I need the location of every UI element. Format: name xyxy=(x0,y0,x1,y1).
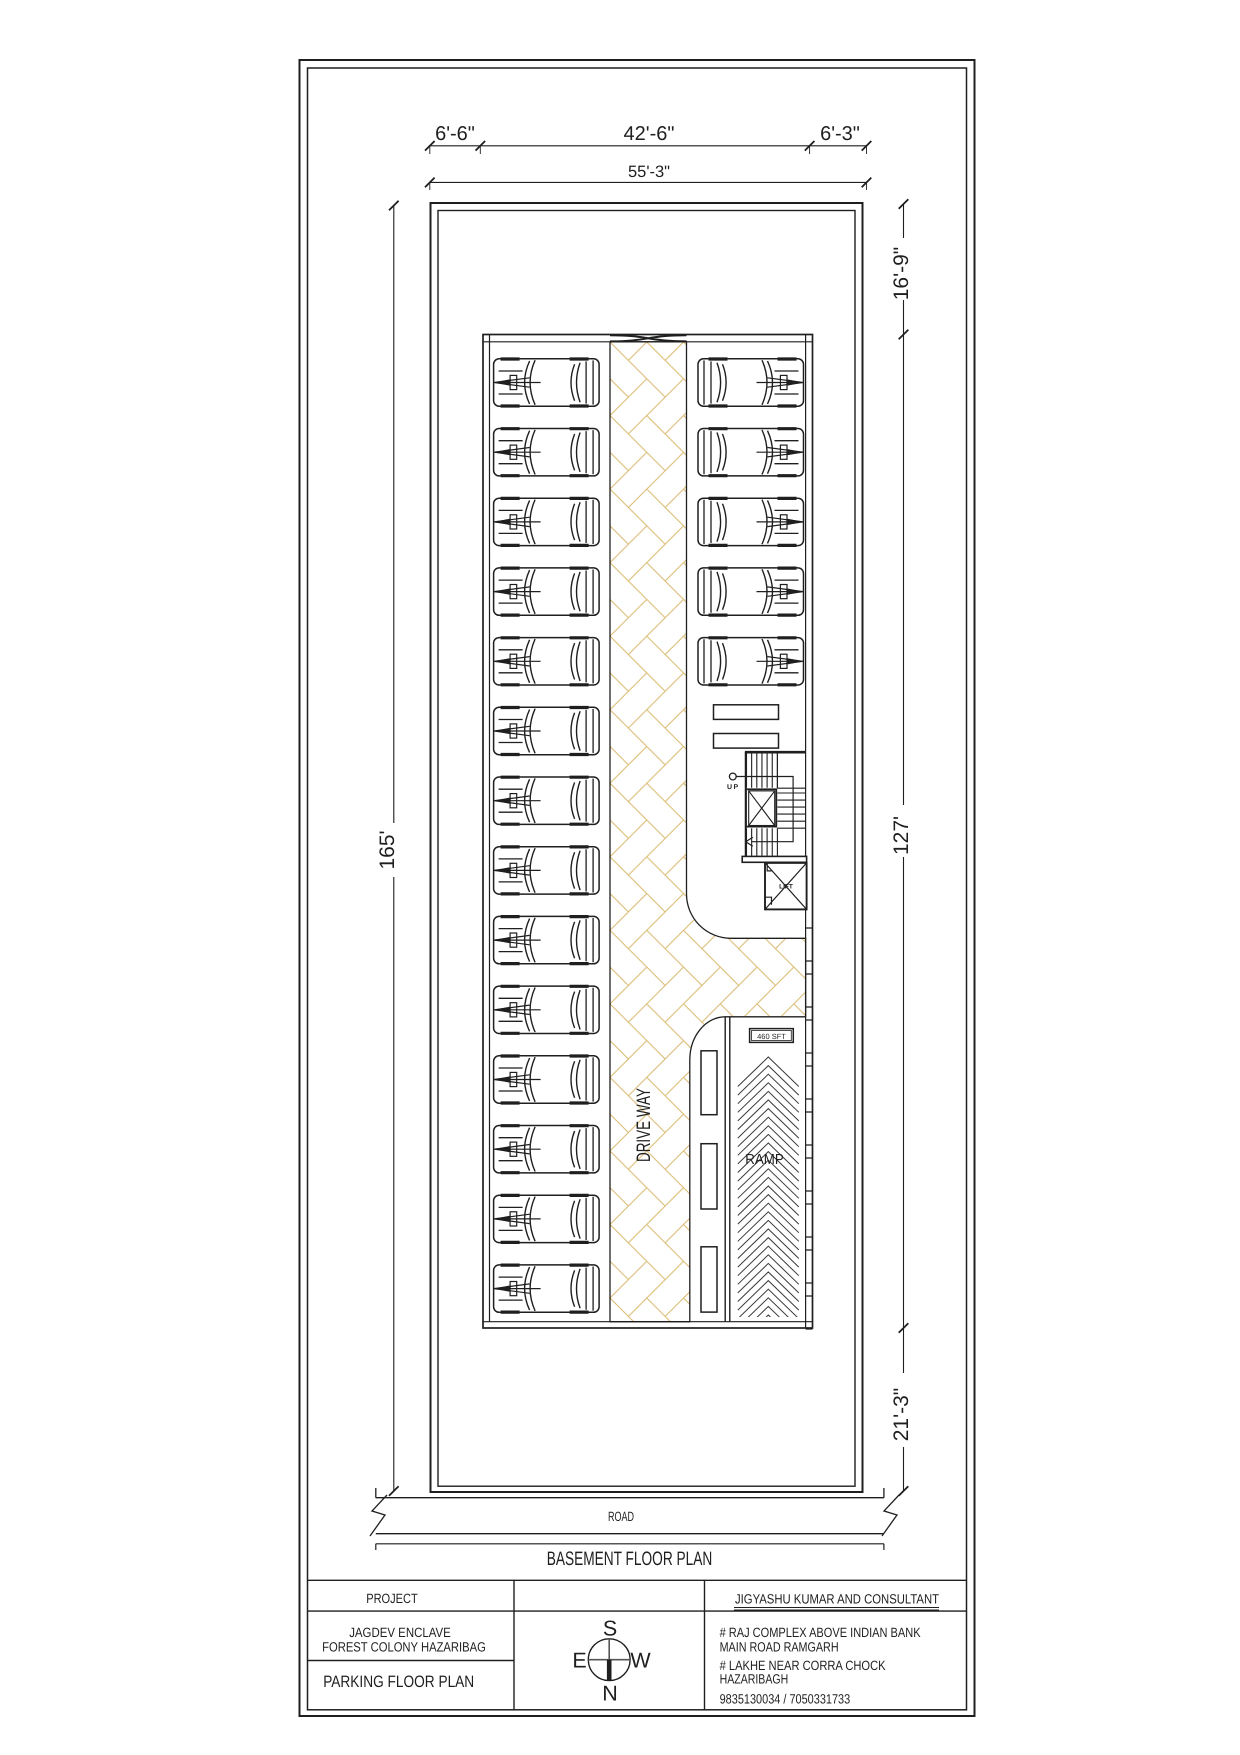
svg-text:16'-9": 16'-9" xyxy=(890,247,913,301)
svg-text:N: N xyxy=(602,1682,618,1706)
svg-text:PARKING FLOOR PLAN: PARKING FLOOR PLAN xyxy=(323,1673,474,1691)
svg-text:PROJECT: PROJECT xyxy=(366,1591,418,1606)
svg-text:ROAD: ROAD xyxy=(608,1509,634,1524)
svg-text:127': 127' xyxy=(890,816,913,855)
svg-text:6'-6": 6'-6" xyxy=(435,123,475,145)
svg-text:RAMP: RAMP xyxy=(745,1152,784,1168)
svg-text:S: S xyxy=(603,1617,617,1641)
svg-text:JAGDEV ENCLAVE: JAGDEV ENCLAVE xyxy=(349,1625,451,1640)
svg-text:HAZARIBAGH: HAZARIBAGH xyxy=(720,1672,789,1687)
svg-text:55'-3": 55'-3" xyxy=(628,163,670,181)
svg-text:165': 165' xyxy=(376,830,399,869)
svg-text:6'-3": 6'-3" xyxy=(820,123,860,145)
svg-text:21'-3": 21'-3" xyxy=(890,1388,913,1442)
svg-text:E: E xyxy=(572,1649,586,1673)
svg-text:JIGYASHU KUMAR AND CONSULTANT: JIGYASHU KUMAR AND CONSULTANT xyxy=(735,1592,939,1607)
svg-text:W: W xyxy=(630,1649,651,1673)
svg-text:FOREST COLONY HAZARIBAG: FOREST COLONY HAZARIBAG xyxy=(322,1640,486,1655)
svg-text:LIFT: LIFT xyxy=(779,884,793,891)
svg-text:# RAJ COMPLEX ABOVE INDIAN BA: # RAJ COMPLEX ABOVE INDIAN BANK xyxy=(720,1625,921,1640)
svg-text:MAIN ROAD RAMGARH: MAIN ROAD RAMGARH xyxy=(720,1640,839,1655)
svg-text:42'-6": 42'-6" xyxy=(624,123,675,145)
svg-text:460 SFT: 460 SFT xyxy=(757,1032,786,1041)
svg-text:UP: UP xyxy=(727,784,740,791)
svg-text:BASEMENT FLOOR PLAN: BASEMENT FLOOR PLAN xyxy=(547,1548,713,1570)
svg-text:DRIVE WAY: DRIVE WAY xyxy=(633,1088,655,1162)
svg-text:9835130034 / 7050331733: 9835130034 / 7050331733 xyxy=(720,1692,851,1707)
